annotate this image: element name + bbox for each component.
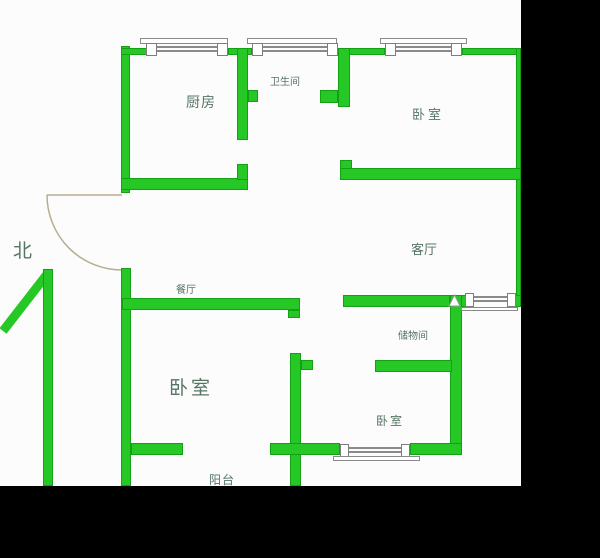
bathroom-label: 卫生间: [270, 73, 300, 88]
bottom-black-mask: [0, 486, 600, 558]
dining-room-label: 餐厅: [176, 281, 196, 296]
storage-room-label: 储物间: [398, 327, 428, 342]
north-label: 北: [13, 236, 32, 263]
bedroom-left-label: 卧室: [169, 373, 213, 400]
bedroom-bottom-right-label: 卧室: [376, 412, 404, 429]
entry-triangle-marker: [449, 295, 460, 306]
kitchen-label: 厨房: [186, 92, 216, 112]
floor-plan-canvas: 北 厨房 卫生间 卧室 客厅 餐厅 储物间 卧室 卧室 阳台: [0, 0, 600, 558]
entry-marker-layer: [0, 0, 600, 558]
right-black-mask: [521, 0, 600, 558]
living-room-label: 客厅: [411, 239, 437, 258]
bedroom-top-right-label: 卧室: [412, 104, 444, 123]
